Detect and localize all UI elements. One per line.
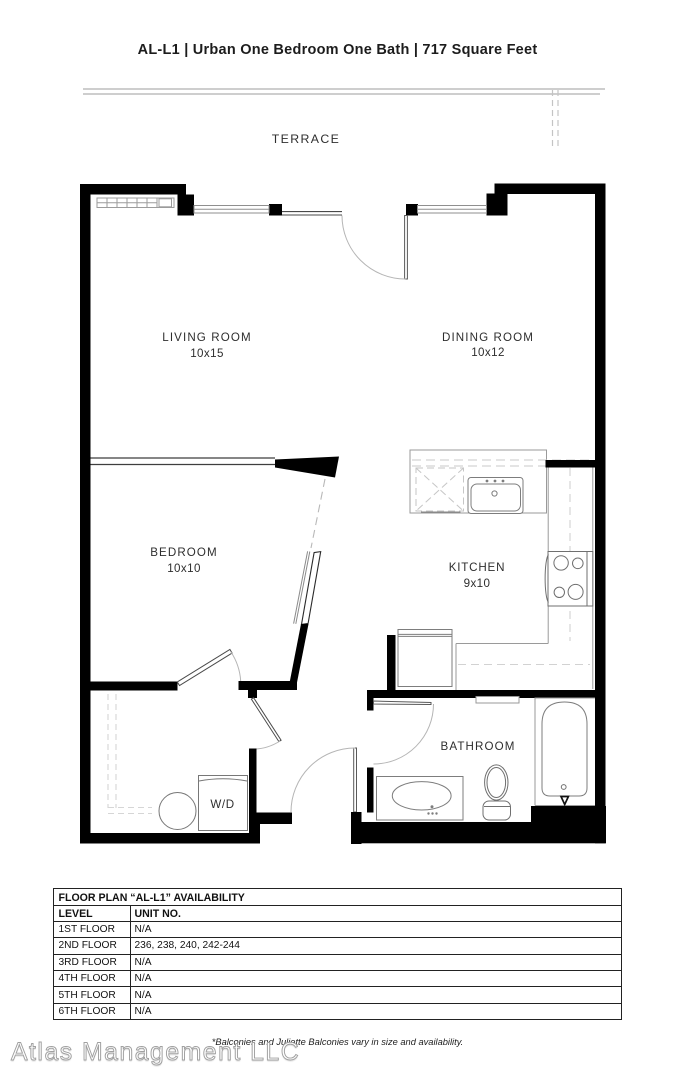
svg-text:BATHROOM: BATHROOM [441,740,516,753]
svg-text:KITCHEN: KITCHEN [449,561,506,574]
svg-text:9x10: 9x10 [464,577,491,590]
svg-text:W/D: W/D [210,798,234,811]
svg-text:10x12: 10x12 [471,346,505,359]
svg-text:10x10: 10x10 [167,562,201,575]
svg-text:BEDROOM: BEDROOM [150,546,218,559]
svg-text:TERRACE: TERRACE [272,132,341,146]
svg-text:LIVING ROOM: LIVING ROOM [162,331,251,344]
svg-text:10x15: 10x15 [190,347,224,360]
svg-text:DINING ROOM: DINING ROOM [442,331,534,344]
